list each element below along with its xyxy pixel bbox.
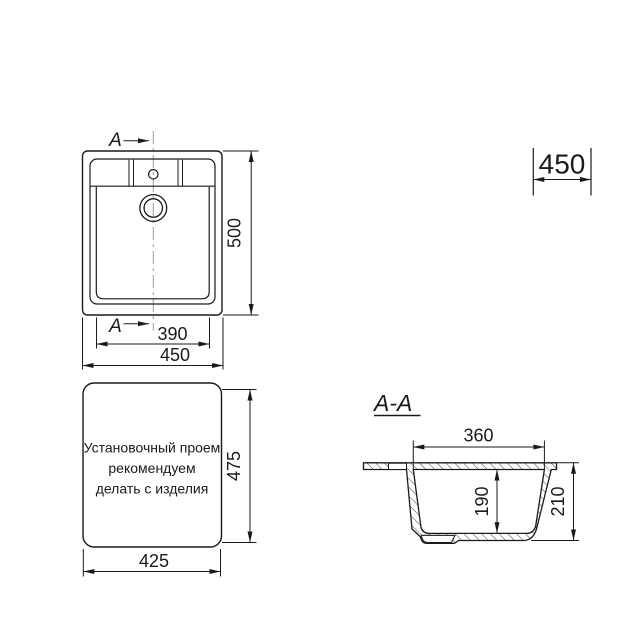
section-view: A-A 360 190 210	[364, 390, 580, 543]
dim-depth-190: 190	[472, 470, 497, 534]
dim-210-value: 210	[548, 486, 568, 516]
drain-recess	[421, 535, 455, 542]
dim-475-value: 475	[224, 451, 244, 481]
dim-425-value: 425	[139, 551, 169, 571]
cutout-note-line-3: делать с изделия	[96, 481, 209, 497]
cutout-panel: Установочный проем рекомендуем делать с …	[83, 383, 257, 577]
technical-drawing-sink: A A 500 390 450	[0, 0, 640, 640]
cutout-note-line-1: Установочный проем	[84, 440, 221, 456]
drawing-svg: A A 500 390 450	[0, 0, 640, 640]
dim-cutout-height-475: 475	[222, 390, 257, 543]
section-title: A-A	[372, 390, 412, 416]
section-label-top: A	[108, 130, 122, 151]
section-body-cut	[364, 463, 557, 544]
dim-500-value: 500	[225, 218, 245, 248]
dim-height-210: 210	[531, 463, 579, 541]
cabinet-width-dim: 450	[533, 148, 591, 196]
sink-outer-edge	[83, 151, 223, 315]
flange-notch	[389, 463, 407, 469]
dim-390-value: 390	[157, 324, 187, 344]
section-arrow-bottom: A	[108, 316, 149, 337]
section-label-bottom: A	[108, 316, 122, 337]
sink-top-view: A A 500 390 450	[83, 130, 259, 370]
cutout-note-line-2: рекомендуем	[108, 460, 195, 476]
dim-360-value: 360	[463, 426, 493, 446]
cabinet-dim-value: 450	[539, 149, 586, 180]
dim-cutout-width-425: 425	[83, 549, 220, 577]
dim-190-value: 190	[472, 486, 492, 516]
sink-rim	[90, 159, 215, 304]
dim-450-value: 450	[160, 345, 190, 365]
dim-height-500: 500	[223, 151, 259, 315]
section-arrow-top: A	[108, 130, 149, 151]
bowl-outline	[96, 187, 209, 299]
